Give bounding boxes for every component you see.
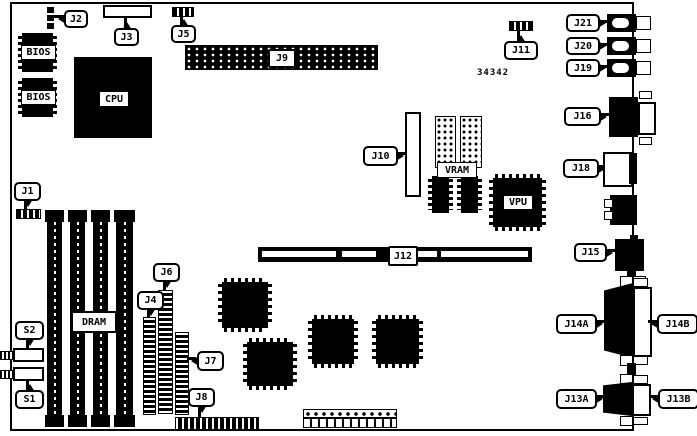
qfp-chip-2 <box>243 338 297 390</box>
callout-s2: S2 <box>15 321 44 340</box>
vram-chip-2 <box>457 176 482 213</box>
dram-slot-4 <box>116 222 133 415</box>
callout-j14b: J14B <box>657 314 697 334</box>
j16-connector <box>609 97 638 137</box>
terminal-box-row <box>304 417 396 427</box>
j12-slot-segment <box>342 251 376 257</box>
drawing-number: 34342 <box>477 68 509 78</box>
callout-j15: J15 <box>574 243 607 262</box>
dram-slot-4-cap <box>114 415 135 427</box>
stacked-port-nub-bottom <box>604 211 613 220</box>
vram-socket-1 <box>435 116 456 168</box>
dram-label: DRAM <box>71 311 117 333</box>
j21-connector-tab <box>636 16 651 30</box>
callout-j14a: J14A <box>556 314 597 334</box>
dram-slot-1-cap <box>45 210 64 222</box>
vram-chip-1 <box>428 176 453 213</box>
callout-j1: J1 <box>14 182 41 201</box>
stacked-port-connector <box>610 195 637 225</box>
j20-connector-opening <box>612 41 629 51</box>
s1-switch <box>13 367 44 381</box>
callout-j13b: J13B <box>658 389 697 409</box>
callout-j6: J6 <box>153 263 180 282</box>
s1-spring <box>0 370 13 379</box>
dram-slot-1 <box>47 222 62 415</box>
j5-connector <box>172 7 194 17</box>
stacked-port-nub-top <box>604 199 613 208</box>
callout-j19: J19 <box>566 59 600 77</box>
motherboard-diagram: J2 J3 J5 BIOS BIOS CPU J9 J11 34342 J21 … <box>0 0 697 436</box>
vpu-label: VPU <box>503 195 533 210</box>
qfp-chip-4 <box>372 315 423 368</box>
j1-connector <box>16 209 41 219</box>
j12-slot-segment <box>441 251 528 257</box>
callout-j16: J16 <box>564 107 601 126</box>
j8-connector <box>175 417 259 430</box>
j13-connector-shell <box>632 384 651 416</box>
callout-j2: J2 <box>64 10 88 28</box>
j13-mount-tab-top-right <box>633 375 648 384</box>
j2-connector <box>47 7 54 29</box>
j13-connector-body <box>603 382 632 416</box>
vram-label: VRAM <box>437 162 477 178</box>
j14-connector-body <box>604 283 633 358</box>
callout-j21: J21 <box>566 14 600 32</box>
dram-slot-3-cap <box>91 210 110 222</box>
callout-j13a: J13A <box>556 389 597 409</box>
j9-label: J9 <box>268 49 296 68</box>
j3-connector <box>103 5 152 18</box>
j20-connector-tab <box>636 39 651 53</box>
j19-connector-opening <box>612 63 629 73</box>
j16-connector-shell <box>638 102 656 135</box>
callout-j11: J11 <box>504 41 538 60</box>
j7-connector <box>175 332 189 415</box>
j12-label: J12 <box>388 246 418 266</box>
j13-mount-tab-bottom-left <box>620 416 633 426</box>
bios-chip-2-label: BIOS <box>21 90 56 105</box>
j18-connector-shield <box>629 153 637 184</box>
j13-mount-tab-bottom-right <box>633 417 648 425</box>
s2-switch <box>13 348 44 362</box>
j12-slot-segment <box>417 251 437 257</box>
power-terminal-block <box>303 409 397 428</box>
callout-j20: J20 <box>566 37 600 55</box>
j15-connector <box>615 239 644 271</box>
j21-connector-opening <box>612 18 629 28</box>
callout-j7: J7 <box>197 351 224 371</box>
qfp-chip-3 <box>308 315 358 368</box>
vram-socket-2 <box>460 116 482 168</box>
j19-connector-tab <box>636 61 651 75</box>
bios-chip-1-label: BIOS <box>21 45 56 60</box>
s2-spring <box>0 351 13 360</box>
j4-connector <box>143 317 156 415</box>
dram-slot-3-cap <box>91 415 110 427</box>
callout-j4: J4 <box>137 291 164 310</box>
j10-slot <box>405 112 421 197</box>
callout-j8: J8 <box>188 388 215 407</box>
dram-slot-2-cap <box>68 210 87 222</box>
j16-mount-tab-top <box>639 91 652 99</box>
callout-s1: S1 <box>15 390 44 409</box>
dram-slot-4-cap <box>114 210 135 222</box>
j14-mount-tab-top-right <box>633 278 648 287</box>
dram-slot-2-cap <box>68 415 87 427</box>
dram-slot-1-cap <box>45 415 64 427</box>
callout-j18: J18 <box>563 159 599 178</box>
j11-connector <box>509 21 533 31</box>
j16-mount-tab-bottom <box>639 137 652 145</box>
callout-j10: J10 <box>363 146 398 166</box>
cpu-label: CPU <box>99 91 129 107</box>
qfp-chip-1 <box>218 278 272 332</box>
callout-j3: J3 <box>114 28 139 46</box>
j12-slot-segment <box>262 251 336 257</box>
callout-j5: J5 <box>171 25 196 43</box>
